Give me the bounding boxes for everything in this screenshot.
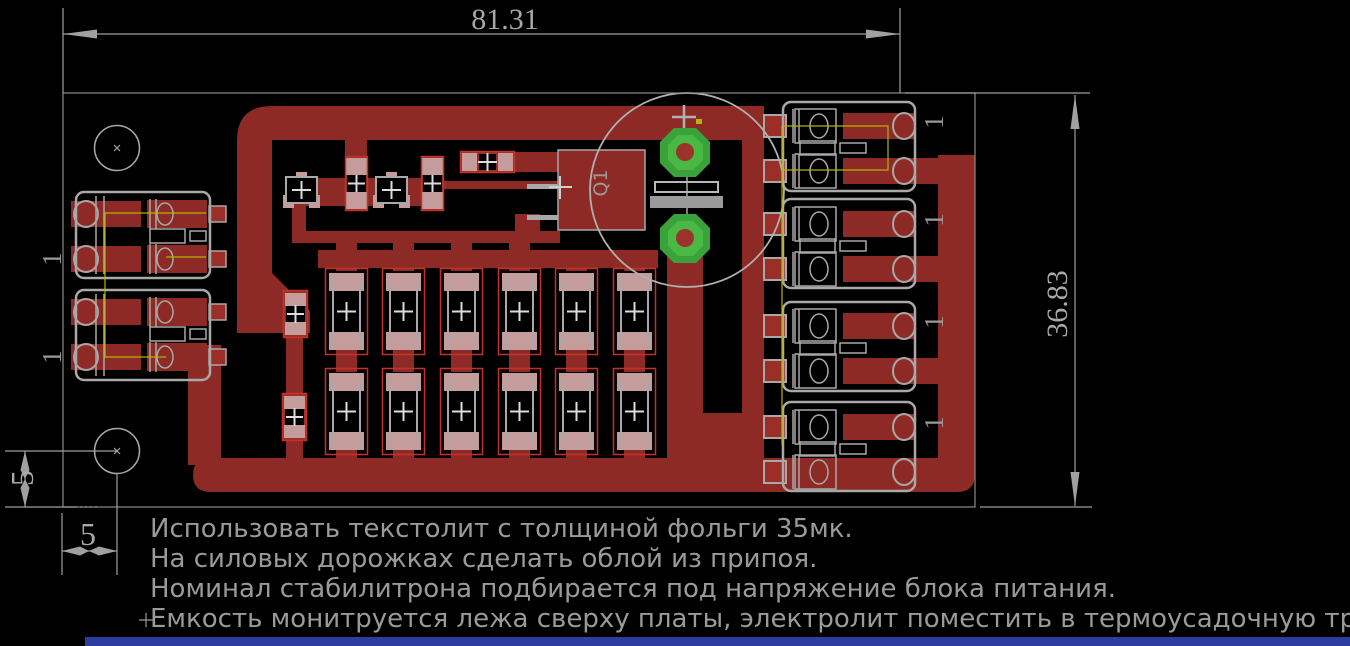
blade-terminal[interactable] <box>71 244 226 274</box>
smd-diode[interactable] <box>556 269 598 355</box>
fabrication-notes: Использовать текстолит с толщиной фольги… <box>139 514 1350 634</box>
zener-diode[interactable] <box>282 393 307 441</box>
left-connectors[interactable]: 1 1 <box>37 192 226 380</box>
smd-diode[interactable] <box>499 269 541 355</box>
note-line-4: Емкость монитруется лежа сверху платы, э… <box>150 604 1350 634</box>
dim-label-hole-v: 5 <box>4 470 40 486</box>
sot23-transistor[interactable] <box>373 172 410 208</box>
smd-resistor-vertical[interactable] <box>345 156 368 211</box>
dim-label-hole-h: 5 <box>80 516 96 552</box>
sot23-transistor[interactable] <box>283 172 320 208</box>
pin1-label: 1 <box>919 315 949 329</box>
blade-terminal[interactable] <box>764 252 916 286</box>
q1-ref-label: Q1 <box>590 169 612 196</box>
blade-terminal[interactable] <box>71 297 226 327</box>
smd-resistor-horizontal[interactable] <box>460 151 515 173</box>
trace-right-feeder <box>742 106 764 460</box>
smd-diode[interactable] <box>326 369 368 455</box>
note-line-1: Использовать текстолит с толщиной фольги… <box>150 514 853 544</box>
cap-pad-negative[interactable] <box>660 214 710 263</box>
note-line-3: Номинал стабилитрона подбирается под нап… <box>150 574 1116 604</box>
blade-terminal[interactable] <box>764 410 916 444</box>
dim-label-width: 81.31 <box>471 3 539 36</box>
dim-label-height: 36.83 <box>1041 270 1074 338</box>
q1-pin2 <box>527 215 560 220</box>
zener-diode[interactable] <box>283 290 308 338</box>
smd-diode[interactable] <box>614 269 656 355</box>
pin1-label: 1 <box>919 416 949 430</box>
smd-diode[interactable] <box>441 369 483 455</box>
smd-diode[interactable] <box>383 269 425 355</box>
trace-left-vertical <box>237 140 272 333</box>
blade-terminal[interactable] <box>71 199 226 229</box>
smd-resistor-vertical[interactable] <box>421 156 444 211</box>
smd-diode[interactable] <box>441 269 483 355</box>
smd-diode[interactable] <box>326 269 368 355</box>
pcb-canvas: Q1 <box>0 0 1350 646</box>
blade-terminal[interactable] <box>764 309 916 343</box>
diode-array[interactable] <box>326 269 656 455</box>
smd-diode[interactable] <box>383 369 425 455</box>
bottom-blue-bar <box>85 637 1350 646</box>
blade-terminal[interactable] <box>764 154 916 188</box>
board-drawing: Q1 <box>0 0 1350 646</box>
airwire-dot <box>696 119 702 124</box>
blade-terminal[interactable] <box>764 207 916 241</box>
smd-diode[interactable] <box>614 369 656 455</box>
pin1-label: 1 <box>919 115 949 129</box>
trace-top-diode-band <box>318 250 658 268</box>
note-line-2: На силовых дорожках сделать облой из при… <box>150 544 817 574</box>
pin1-label: 1 <box>919 213 949 227</box>
smd-diode[interactable] <box>499 369 541 455</box>
blade-terminal[interactable] <box>764 354 916 388</box>
cap-pad-positive[interactable] <box>660 128 710 177</box>
capacitor-plate-filled <box>650 196 723 208</box>
smd-diode[interactable] <box>556 369 598 455</box>
